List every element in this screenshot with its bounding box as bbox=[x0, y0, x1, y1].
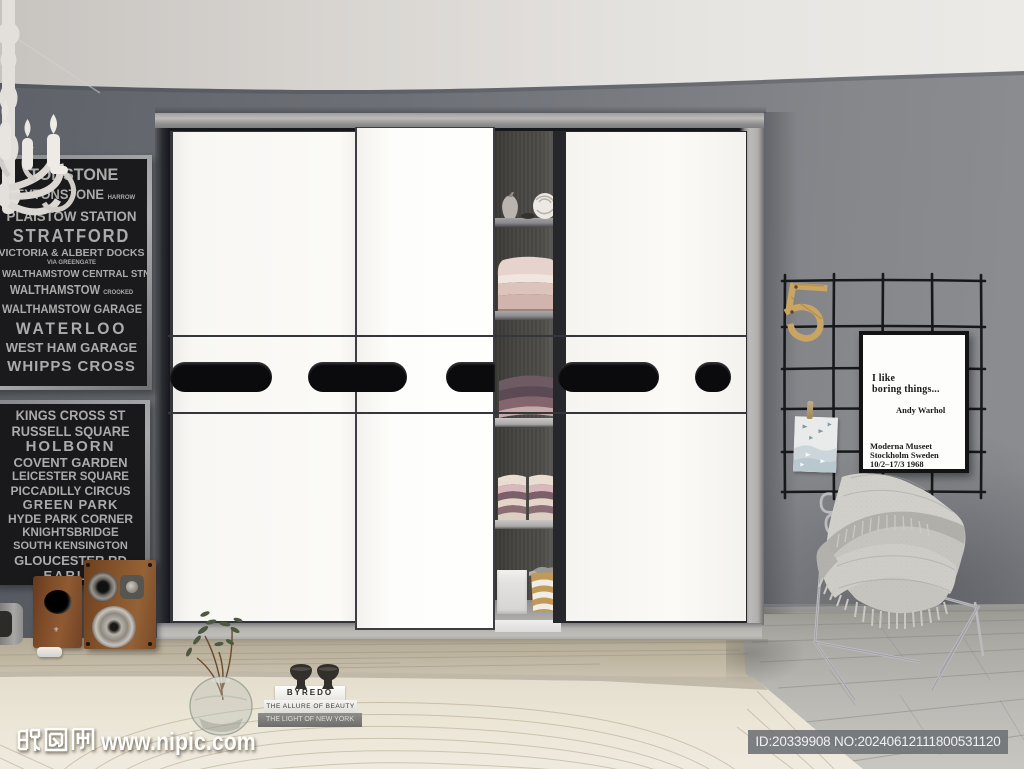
svg-text:www.nipic.com: www.nipic.com bbox=[100, 727, 256, 755]
